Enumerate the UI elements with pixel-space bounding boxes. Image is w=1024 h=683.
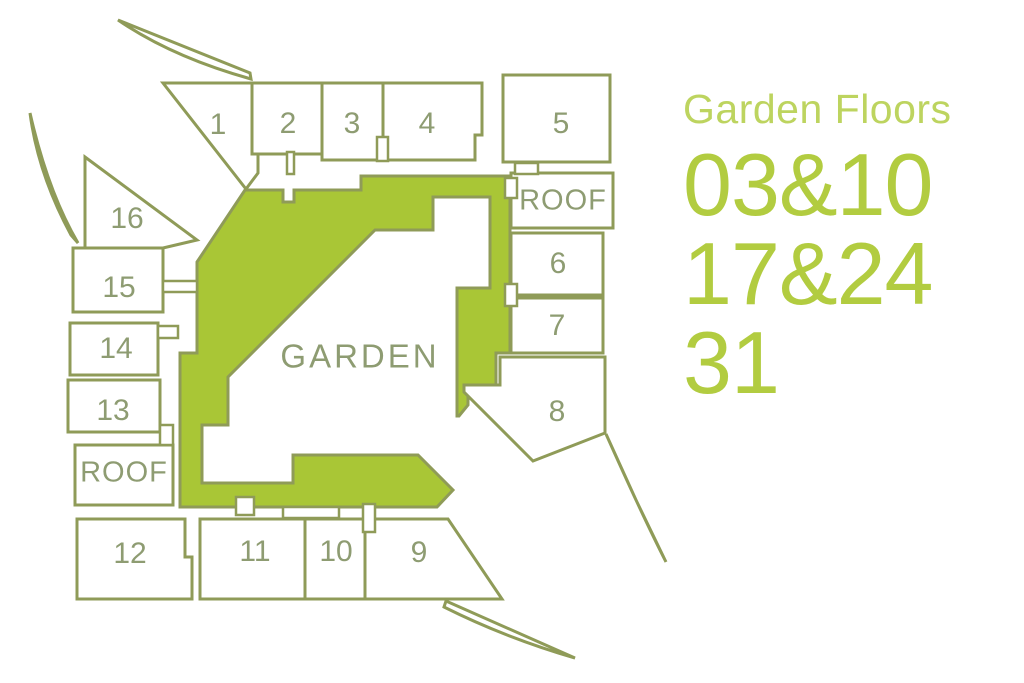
- unit-label-2: 2: [280, 109, 297, 139]
- sail-bottom-fin: [444, 601, 575, 658]
- unit-label-5: 5: [553, 109, 570, 139]
- door-stub: [515, 163, 538, 174]
- unit-label-4: 4: [419, 109, 436, 139]
- unit-label-3: 3: [344, 109, 361, 139]
- garden-floors-panel: Garden Floors 03&10 17&24 31: [683, 86, 952, 407]
- panel-title: Garden Floors: [683, 86, 952, 132]
- door-stub: [236, 497, 254, 515]
- roof-left-label: ROOF: [80, 459, 168, 488]
- unit-label-15: 15: [102, 273, 135, 303]
- roof-right-label: ROOF: [519, 187, 607, 216]
- unit-label-9: 9: [411, 538, 428, 568]
- door-stub: [163, 281, 197, 292]
- unit-label-1: 1: [210, 110, 227, 140]
- unit-label-6: 6: [550, 249, 567, 279]
- garden-floor-plan-figure: 1 2 3 4 5 6 7 8 9 10 11 12 13 14 15 16 R…: [0, 0, 1024, 683]
- panel-floor-line-1: 03&10: [683, 140, 952, 229]
- door-stub: [283, 507, 339, 518]
- unit-label-8: 8: [549, 397, 566, 427]
- door-stub: [505, 284, 517, 306]
- garden-label: GARDEN: [280, 340, 439, 373]
- unit-label-11: 11: [239, 537, 270, 567]
- door-stub: [158, 326, 178, 338]
- door-stub: [160, 425, 173, 445]
- sail-top-fin: [118, 20, 251, 79]
- sail-right-fin: [606, 434, 666, 562]
- unit-label-10: 10: [319, 537, 352, 567]
- panel-floor-line-3: 31: [683, 318, 952, 407]
- unit-label-7: 7: [549, 311, 566, 341]
- unit-label-14: 14: [99, 334, 132, 364]
- unit-9-shape: [365, 519, 502, 599]
- door-stub: [377, 137, 388, 161]
- unit-label-13: 13: [96, 396, 129, 426]
- unit-label-16: 16: [110, 204, 143, 234]
- sail-left-fin: [30, 113, 78, 243]
- panel-floor-line-2: 17&24: [683, 229, 952, 318]
- door-stub: [505, 178, 517, 198]
- door-stub: [287, 152, 294, 174]
- door-stub: [363, 504, 375, 532]
- unit-label-12: 12: [113, 539, 146, 569]
